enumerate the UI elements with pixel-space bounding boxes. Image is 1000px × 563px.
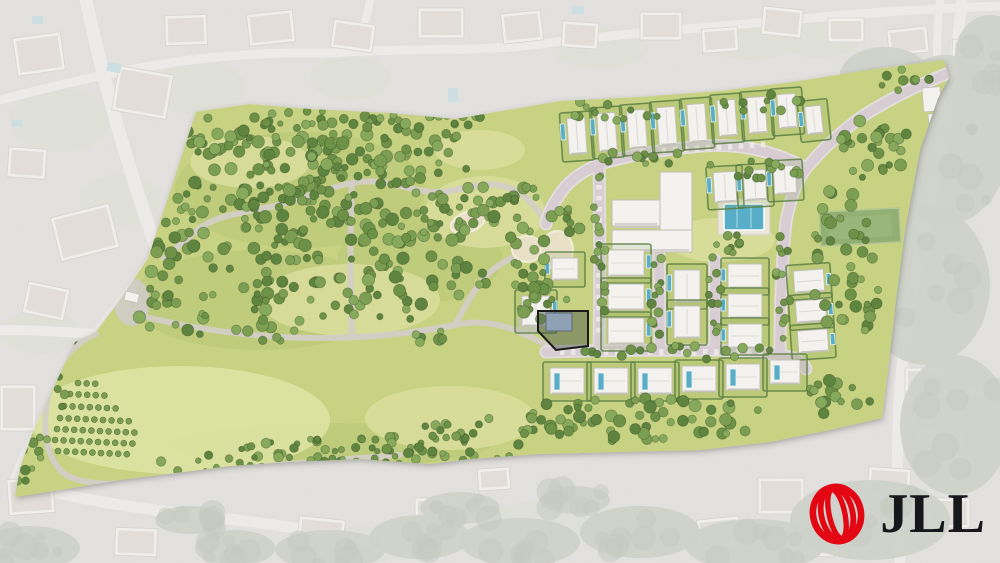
tree [837, 314, 847, 324]
tree [573, 410, 585, 422]
tree [657, 254, 666, 263]
tree [284, 108, 292, 116]
tree [437, 220, 443, 226]
tree [365, 143, 374, 152]
tree [314, 255, 323, 264]
tree [868, 143, 877, 152]
tree [567, 219, 574, 226]
tree [424, 147, 433, 156]
tree [307, 138, 317, 148]
tree [444, 148, 453, 157]
tree [372, 436, 379, 443]
tree [388, 118, 395, 125]
orchard-tree [100, 417, 106, 423]
tree [518, 282, 528, 292]
tree [644, 401, 657, 414]
tree [627, 107, 634, 114]
orchard-tree [126, 418, 132, 424]
orchard-tree [109, 417, 115, 423]
tree [271, 254, 282, 265]
tree [556, 415, 566, 425]
tree [261, 438, 271, 448]
tree [285, 255, 295, 265]
tree [517, 222, 529, 234]
tree [363, 122, 373, 132]
private-pool [680, 110, 686, 126]
tree [689, 400, 701, 412]
tree [463, 182, 474, 193]
tree [710, 320, 716, 326]
tree [172, 321, 179, 328]
orchard-tree [61, 437, 67, 443]
tree [289, 282, 299, 292]
tree [255, 225, 262, 232]
tree [723, 430, 730, 437]
tree [268, 110, 276, 118]
tree [279, 289, 288, 298]
tree [172, 218, 179, 225]
tree [530, 263, 538, 271]
tree [468, 218, 478, 228]
tree [54, 385, 61, 392]
tree [533, 194, 539, 200]
orchard-tree [98, 450, 104, 456]
tree [274, 235, 283, 244]
tree [790, 169, 798, 177]
tree [851, 399, 862, 410]
tree [368, 229, 378, 239]
tree [219, 206, 226, 213]
tree [705, 291, 712, 298]
tree [359, 436, 366, 443]
tree [225, 455, 233, 463]
orchard-tree [124, 451, 130, 457]
tree [595, 174, 602, 181]
tree [331, 301, 340, 310]
tree [779, 271, 786, 278]
tree [530, 245, 539, 254]
tree [335, 273, 345, 283]
tree [346, 153, 358, 165]
tree [519, 269, 529, 279]
tree [613, 415, 625, 427]
tree [22, 477, 30, 485]
tree [672, 342, 679, 349]
private-pool [830, 333, 835, 344]
tree [145, 322, 154, 331]
tree [792, 96, 801, 105]
site-plan-render: JLL [0, 0, 1000, 563]
tree [861, 326, 869, 334]
tree [626, 345, 636, 355]
tree [688, 415, 696, 423]
tree [204, 195, 211, 202]
tree [382, 444, 392, 454]
tree [712, 269, 720, 277]
tree [849, 167, 857, 175]
tree [274, 452, 284, 462]
tree [879, 82, 885, 88]
orchard-tree [70, 403, 76, 409]
tree [241, 215, 248, 222]
tree [295, 316, 304, 325]
tree [225, 162, 237, 174]
tree [392, 178, 402, 188]
tree [673, 149, 682, 158]
tree [320, 313, 327, 320]
tree [318, 120, 328, 130]
tree [429, 432, 437, 440]
tree [297, 196, 307, 206]
jll-logo-text: JLL [880, 486, 986, 542]
tree [133, 311, 146, 324]
tree [264, 149, 275, 160]
building-footprint [612, 200, 660, 226]
tree [594, 350, 602, 358]
tree [443, 434, 450, 441]
tree [632, 397, 639, 404]
tree [652, 436, 659, 443]
tree [723, 231, 732, 240]
tree [334, 163, 342, 171]
tree [258, 315, 267, 324]
tree [837, 215, 844, 222]
tree [564, 426, 574, 436]
tree [895, 87, 902, 94]
orchard-tree [75, 380, 81, 386]
tree [760, 107, 767, 114]
tree [564, 227, 574, 237]
tree [338, 175, 345, 182]
private-pool [798, 112, 804, 126]
tree [527, 413, 537, 423]
tree [595, 223, 602, 230]
tree [404, 166, 414, 176]
road [599, 166, 600, 350]
tree [745, 166, 754, 175]
tree [397, 252, 410, 265]
tree [314, 277, 325, 288]
tree [326, 218, 335, 227]
tree [252, 136, 265, 149]
tree [678, 395, 690, 407]
tree [209, 164, 221, 176]
tree [659, 434, 667, 442]
tree [738, 343, 748, 353]
tree [338, 446, 344, 452]
tree [754, 407, 761, 414]
orchard-tree [69, 438, 75, 444]
tree [564, 405, 573, 414]
tree [258, 192, 269, 203]
villa-plot [587, 362, 635, 401]
tree [702, 355, 710, 363]
orchard-tree [115, 451, 121, 457]
tree [821, 316, 833, 328]
tree [478, 269, 487, 278]
tree [290, 327, 298, 335]
tree [847, 262, 856, 271]
tree [716, 285, 725, 294]
tree [307, 296, 314, 303]
orchard-tree [57, 415, 63, 421]
tree [871, 298, 882, 309]
tree [376, 179, 386, 189]
tree [414, 123, 424, 133]
tree [699, 427, 709, 437]
tree [755, 344, 764, 353]
orchard-tree [72, 449, 78, 455]
tree [565, 205, 572, 212]
tree [437, 193, 449, 205]
tree [420, 229, 427, 236]
orchard-tree [71, 427, 77, 433]
tree [478, 182, 489, 193]
tree [185, 228, 194, 237]
tree [600, 306, 609, 315]
tree [630, 424, 641, 435]
tree [286, 147, 295, 156]
tree [591, 214, 600, 223]
tree [242, 326, 253, 337]
tree [446, 234, 459, 247]
tree [598, 263, 606, 271]
tree [447, 281, 456, 290]
tree [574, 223, 585, 234]
tree [146, 285, 153, 292]
tree [849, 229, 859, 239]
tree [651, 261, 657, 267]
tree [465, 448, 474, 457]
tree [571, 111, 579, 119]
tree [690, 342, 700, 352]
tree [840, 244, 852, 256]
tree [845, 289, 857, 301]
tree [386, 213, 399, 226]
orchard-tree [84, 380, 90, 386]
tree [272, 333, 281, 342]
tree [427, 219, 434, 226]
tree [359, 292, 372, 305]
tree [600, 246, 609, 255]
tree [734, 172, 742, 180]
tree [336, 137, 349, 150]
villa-plot [719, 358, 767, 397]
tree [721, 346, 730, 355]
tree [812, 252, 824, 264]
tree [613, 116, 621, 124]
tree [189, 208, 196, 215]
tree [429, 282, 438, 291]
tree [814, 235, 821, 242]
orchard-tree [104, 405, 110, 411]
tree [766, 90, 775, 99]
tree [825, 217, 837, 229]
tree [172, 298, 181, 307]
tree [317, 185, 326, 194]
tree [262, 276, 272, 286]
jll-sphere-icon [804, 481, 870, 547]
tree [20, 465, 30, 475]
tree [189, 176, 202, 189]
tree [422, 423, 429, 430]
tree [254, 291, 261, 298]
tree [247, 171, 255, 179]
private-pool [721, 269, 726, 281]
private-pool [642, 373, 648, 390]
masterplan-scene [0, 0, 1000, 563]
tree [293, 124, 300, 131]
tree [488, 210, 501, 223]
orchard-tree [88, 428, 94, 434]
private-pool [710, 106, 716, 122]
tree [360, 202, 372, 214]
tree [667, 418, 675, 426]
tree [317, 206, 330, 219]
tree [187, 240, 200, 253]
orchard-tree [113, 405, 119, 411]
orchard-tree [121, 440, 127, 446]
tree [275, 184, 282, 191]
tree [173, 193, 183, 203]
tree [520, 429, 528, 437]
tree [262, 297, 269, 304]
tree [415, 298, 428, 311]
tree [555, 430, 564, 439]
tree [165, 247, 177, 259]
tree [196, 331, 203, 338]
private-pool [730, 369, 736, 386]
tree [195, 458, 201, 464]
tree [181, 203, 189, 211]
tree [823, 374, 835, 386]
orchard-tree [81, 449, 87, 455]
tree [394, 284, 406, 296]
tree [867, 253, 877, 263]
tree [656, 287, 664, 295]
tree [283, 184, 296, 197]
tree [411, 455, 420, 464]
orchard-tree [123, 429, 129, 435]
tree [766, 347, 773, 354]
tree [864, 301, 871, 308]
tree [432, 141, 443, 152]
tree [299, 239, 312, 252]
tree [895, 159, 907, 171]
tree [306, 206, 316, 216]
tree [540, 269, 547, 276]
tree [603, 100, 612, 109]
tree [541, 399, 552, 410]
tree [810, 386, 819, 395]
tree [277, 209, 289, 221]
orchard-tree [80, 427, 86, 433]
tree [563, 296, 570, 303]
tree [647, 317, 656, 326]
tree [218, 243, 230, 255]
tree [403, 448, 413, 458]
villa-plot [667, 300, 707, 345]
tree [727, 400, 734, 407]
tree [278, 121, 284, 127]
tree [781, 314, 790, 323]
tree [398, 223, 405, 230]
tree [158, 271, 168, 281]
tree [514, 440, 524, 450]
tree [195, 149, 202, 156]
private-pool [707, 178, 712, 193]
tree [706, 276, 713, 283]
tree [257, 182, 264, 189]
tree [574, 404, 581, 411]
tree [374, 155, 387, 168]
tree [389, 271, 401, 283]
tree [590, 255, 598, 263]
tree [854, 115, 866, 127]
tree [706, 405, 716, 415]
tree [400, 118, 411, 129]
tree [250, 113, 260, 123]
tree [757, 174, 765, 182]
tree [426, 251, 437, 262]
tree [590, 204, 597, 211]
tree [511, 195, 519, 203]
tree [347, 217, 356, 226]
tree [847, 188, 859, 200]
tree [655, 330, 664, 339]
tree [224, 141, 233, 150]
orchard-tree [89, 450, 95, 456]
orchard-tree [97, 428, 103, 434]
tree [460, 225, 471, 236]
tree [145, 265, 158, 278]
tree [204, 114, 212, 122]
private-pool [554, 373, 560, 390]
tree [456, 204, 463, 211]
tree [259, 210, 272, 223]
tree [522, 183, 531, 192]
orchard-tree [112, 440, 118, 446]
tree [824, 186, 836, 198]
tree [537, 415, 546, 424]
private-pool [721, 329, 726, 341]
tree [654, 113, 660, 119]
tree [505, 232, 516, 243]
tree [163, 290, 173, 300]
tree [302, 120, 311, 129]
tree [407, 315, 414, 322]
tree [461, 194, 469, 202]
tree [666, 395, 676, 405]
tree [209, 143, 220, 154]
tree [204, 451, 213, 460]
tree [838, 398, 845, 405]
tree [478, 204, 490, 216]
private-pool [667, 275, 672, 291]
villa-plot [675, 360, 723, 399]
tree [434, 233, 442, 241]
tree [438, 334, 447, 343]
tree [828, 274, 840, 286]
tree [277, 276, 288, 287]
tree [784, 247, 792, 255]
tree [665, 159, 673, 167]
tree [733, 232, 740, 239]
orchard-tree [114, 429, 120, 435]
tree [912, 76, 920, 84]
tree [58, 403, 65, 410]
tree [209, 264, 218, 273]
